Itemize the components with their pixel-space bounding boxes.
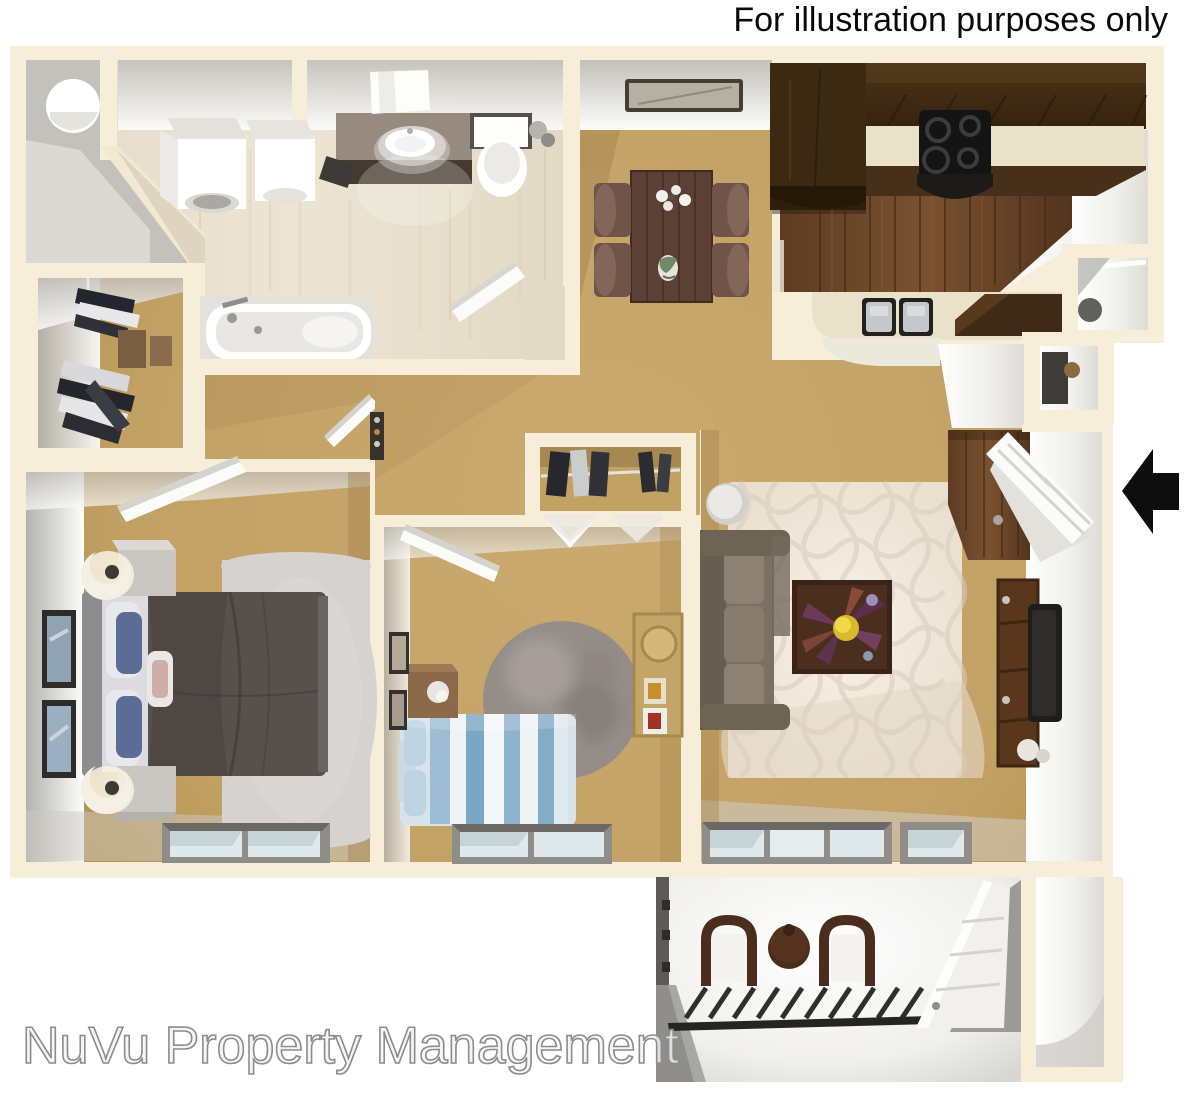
svg-text:NuVu Property Management: NuVu Property Management (22, 1017, 680, 1075)
svg-text:For illustration purposes only: For illustration purposes only (733, 1, 1168, 39)
